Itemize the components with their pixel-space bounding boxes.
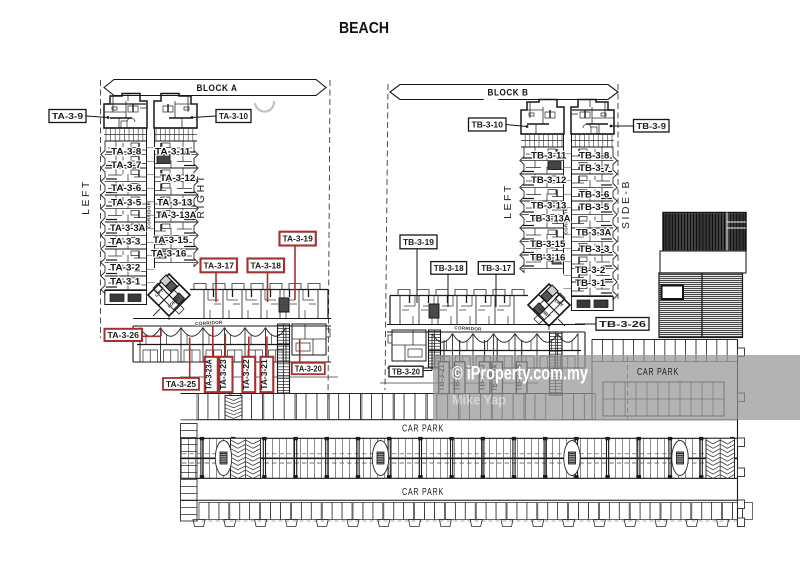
- svg-text:SIDE-B: SIDE-B: [620, 179, 632, 229]
- svg-text:BLOCK B: BLOCK B: [488, 87, 529, 97]
- svg-text:TB-3-13: TB-3-13: [531, 201, 566, 211]
- svg-text:TB-3-2: TB-3-2: [575, 265, 605, 275]
- svg-text:© iProperty.com.my: © iProperty.com.my: [452, 363, 588, 384]
- svg-text:TA-3-21: TA-3-21: [260, 359, 269, 390]
- svg-text:TA-3-20: TA-3-20: [295, 364, 322, 374]
- svg-text:TB-3-8: TB-3-8: [579, 151, 609, 161]
- svg-text:CAR PARK: CAR PARK: [402, 424, 444, 435]
- svg-text:TA-3-5: TA-3-5: [111, 198, 141, 208]
- svg-text:TA-3-3A: TA-3-3A: [110, 223, 146, 233]
- svg-text:TB-3-1: TB-3-1: [575, 278, 605, 288]
- svg-text:TB-3-19: TB-3-19: [403, 237, 434, 247]
- svg-text:TB-3-11: TB-3-11: [531, 151, 566, 161]
- svg-text:TB-3-6: TB-3-6: [579, 190, 609, 200]
- svg-text:TB-3-17: TB-3-17: [481, 263, 511, 273]
- svg-text:TB-3-9: TB-3-9: [637, 121, 667, 131]
- svg-text:TA-3-25: TA-3-25: [166, 379, 196, 389]
- svg-text:TA-3-1: TA-3-1: [110, 277, 140, 287]
- svg-text:TA-3-6: TA-3-6: [111, 183, 141, 193]
- svg-text:LEFT: LEFT: [80, 179, 92, 215]
- svg-text:TB-3-18: TB-3-18: [434, 263, 464, 273]
- svg-text:TA-3-22: TA-3-22: [242, 359, 251, 390]
- svg-text:LEFT: LEFT: [502, 183, 514, 219]
- svg-text:TA-3-13A: TA-3-13A: [156, 210, 197, 220]
- svg-text:TA-3-13: TA-3-13: [157, 198, 192, 208]
- svg-text:BLOCK A: BLOCK A: [197, 83, 238, 93]
- svg-text:TA-3-16: TA-3-16: [151, 249, 186, 259]
- svg-text:TB-3-7: TB-3-7: [579, 163, 609, 173]
- svg-text:CAR PARK: CAR PARK: [637, 367, 679, 378]
- svg-text:TB-3-10: TB-3-10: [472, 120, 504, 130]
- svg-text:TA-3-10: TA-3-10: [219, 111, 248, 121]
- svg-text:TA-3-12: TA-3-12: [160, 173, 195, 183]
- svg-text:TA-3-7: TA-3-7: [111, 160, 141, 170]
- svg-text:TA-3-8: TA-3-8: [111, 147, 141, 157]
- svg-text:TA-3-26: TA-3-26: [108, 330, 140, 340]
- svg-text:TA-3-19: TA-3-19: [283, 234, 314, 244]
- svg-text:CORRIDOR: CORRIDOR: [147, 201, 152, 228]
- svg-text:TB-3-5: TB-3-5: [579, 202, 609, 212]
- svg-text:TB-3-3: TB-3-3: [579, 244, 609, 254]
- svg-text:TA-3-18: TA-3-18: [251, 260, 282, 270]
- svg-text:TA-3-2: TA-3-2: [110, 263, 140, 273]
- svg-text:CAR PARK: CAR PARK: [402, 487, 444, 498]
- svg-text:TB-3-3A: TB-3-3A: [576, 228, 612, 238]
- svg-text:TB-3-16: TB-3-16: [530, 253, 565, 263]
- svg-text:TB-3-13A: TB-3-13A: [530, 214, 571, 224]
- svg-text:TA-3-9: TA-3-9: [52, 111, 83, 121]
- svg-text:TA-3-17: TA-3-17: [204, 260, 235, 270]
- svg-text:TB-3-12: TB-3-12: [531, 175, 566, 185]
- svg-text:BEACH: BEACH: [339, 20, 389, 37]
- svg-text:TA-3-11: TA-3-11: [155, 147, 190, 157]
- svg-text:TA-3-15: TA-3-15: [153, 235, 188, 245]
- svg-text:TA-3-3: TA-3-3: [110, 237, 140, 247]
- svg-text:TA-3-23: TA-3-23: [219, 359, 228, 390]
- svg-text:TA-3-23A: TA-3-23A: [204, 359, 213, 389]
- svg-text:TB-3-20: TB-3-20: [392, 367, 420, 377]
- svg-text:TB-3-15: TB-3-15: [530, 239, 565, 249]
- svg-text:Mike Yap: Mike Yap: [452, 392, 506, 408]
- svg-text:TB-3-26: TB-3-26: [599, 319, 646, 329]
